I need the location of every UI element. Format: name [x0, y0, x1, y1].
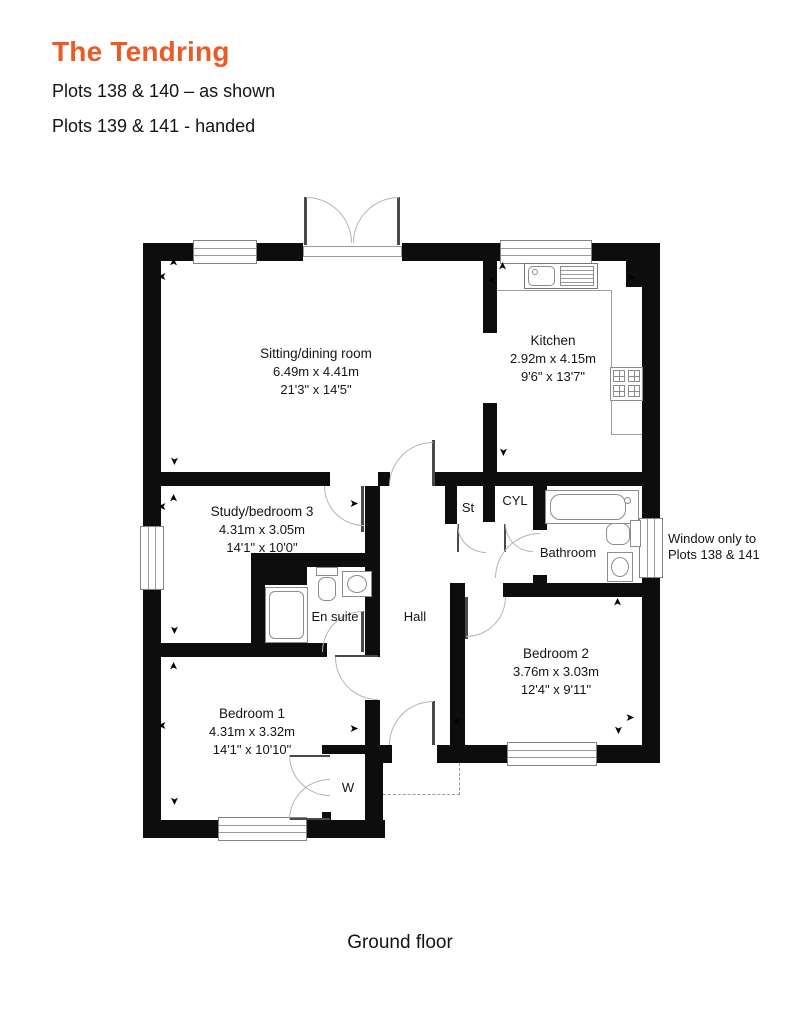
dimension-arrow: ➤: [612, 596, 624, 608]
floorplan-page: The Tendring Plots 138 & 140 – as shown …: [0, 0, 800, 1036]
room-label-wardrobe: W: [328, 780, 368, 795]
floor-label: Ground floor: [0, 932, 800, 954]
window: [218, 817, 307, 841]
dimension-arrow: ➤: [624, 712, 636, 724]
page-title: The Tendring: [52, 36, 230, 68]
room-label-bedroom1: Bedroom 1 4.31m x 3.32m 14'1" x 10'10": [162, 705, 342, 759]
porch-dashed-line: [459, 763, 460, 795]
door-arc: [389, 442, 433, 486]
toilet: [318, 577, 336, 601]
wall: [161, 472, 330, 486]
plots-as-shown-label: Plots 138 & 140 – as shown: [52, 81, 275, 102]
window: [140, 526, 164, 590]
dimension-arrow: ➤: [486, 274, 498, 286]
door-arc: [457, 524, 486, 553]
room-label-bedroom2: Bedroom 2 3.76m x 3.03m 12'4" x 9'11": [466, 645, 646, 699]
toilet-cistern: [630, 520, 641, 547]
dimension-arrow: ➤: [168, 256, 180, 268]
wall: [597, 745, 660, 763]
front-door-arc: [389, 701, 433, 745]
door-arc: [466, 597, 506, 637]
french-door-threshold: [303, 246, 402, 257]
hob-burner: [628, 385, 640, 397]
dimension-arrow: ➤: [625, 272, 637, 284]
door-arc: [335, 657, 378, 700]
wall: [257, 243, 303, 261]
wall: [143, 820, 218, 838]
porch-dashed-line: [383, 794, 460, 795]
room-label-kitchen: Kitchen 2.92m x 4.15m 9'6" x 13'7": [463, 332, 643, 386]
dimension-arrow: ➤: [497, 446, 509, 458]
basin-bowl: [347, 575, 367, 593]
wall: [161, 643, 327, 657]
counter-line: [497, 290, 612, 291]
sink-drainer: [560, 266, 594, 286]
bath-inner: [550, 494, 626, 520]
basin-bowl: [611, 557, 629, 577]
wall: [483, 261, 497, 333]
wall: [433, 472, 642, 486]
window: [193, 240, 257, 264]
dimension-arrow: ➤: [168, 624, 180, 636]
dimension-arrow: ➤: [451, 715, 463, 727]
door-arc: [306, 197, 352, 243]
wall: [483, 403, 497, 486]
window-plots-138-141: [639, 518, 663, 578]
wall: [402, 243, 500, 261]
window: [507, 742, 597, 766]
counter-line: [611, 434, 642, 435]
wall: [503, 583, 642, 597]
window: [500, 240, 592, 264]
dimension-arrow: ➤: [156, 500, 168, 512]
room-label-sitting: Sitting/dining room 6.49m x 4.41m 21'3" …: [226, 345, 406, 399]
hob-burner: [613, 385, 625, 397]
plots-handed-label: Plots 139 & 141 - handed: [52, 116, 255, 137]
bath-tap: [624, 497, 631, 504]
ensuite-boxing: [265, 567, 307, 585]
door-arc: [289, 779, 330, 820]
wall: [365, 700, 380, 745]
room-label-study: Study/bedroom 3 4.31m x 3.05m 14'1" x 10…: [172, 503, 352, 557]
toilet: [606, 523, 630, 545]
wall: [437, 745, 507, 763]
door-arc: [353, 197, 399, 243]
window-note: Window only to Plots 138 & 141: [668, 531, 760, 562]
dimension-arrow: ➤: [168, 660, 180, 672]
toilet-cistern: [316, 567, 338, 576]
wall: [143, 590, 161, 838]
room-label-cylinder: CYL: [485, 493, 545, 508]
dimension-arrow: ➤: [497, 260, 509, 272]
dimension-arrow: ➤: [612, 724, 624, 736]
wall: [307, 820, 385, 838]
dimension-arrow: ➤: [348, 723, 360, 735]
dimension-arrow: ➤: [168, 455, 180, 467]
room-label-store: St: [448, 500, 488, 515]
dimension-arrow: ➤: [156, 270, 168, 282]
wall: [383, 745, 392, 763]
room-label-hall: Hall: [375, 609, 455, 624]
wall: [143, 243, 161, 526]
sink-tap: [532, 269, 538, 275]
dimension-arrow: ➤: [168, 795, 180, 807]
room-label-bathroom: Bathroom: [508, 545, 628, 560]
